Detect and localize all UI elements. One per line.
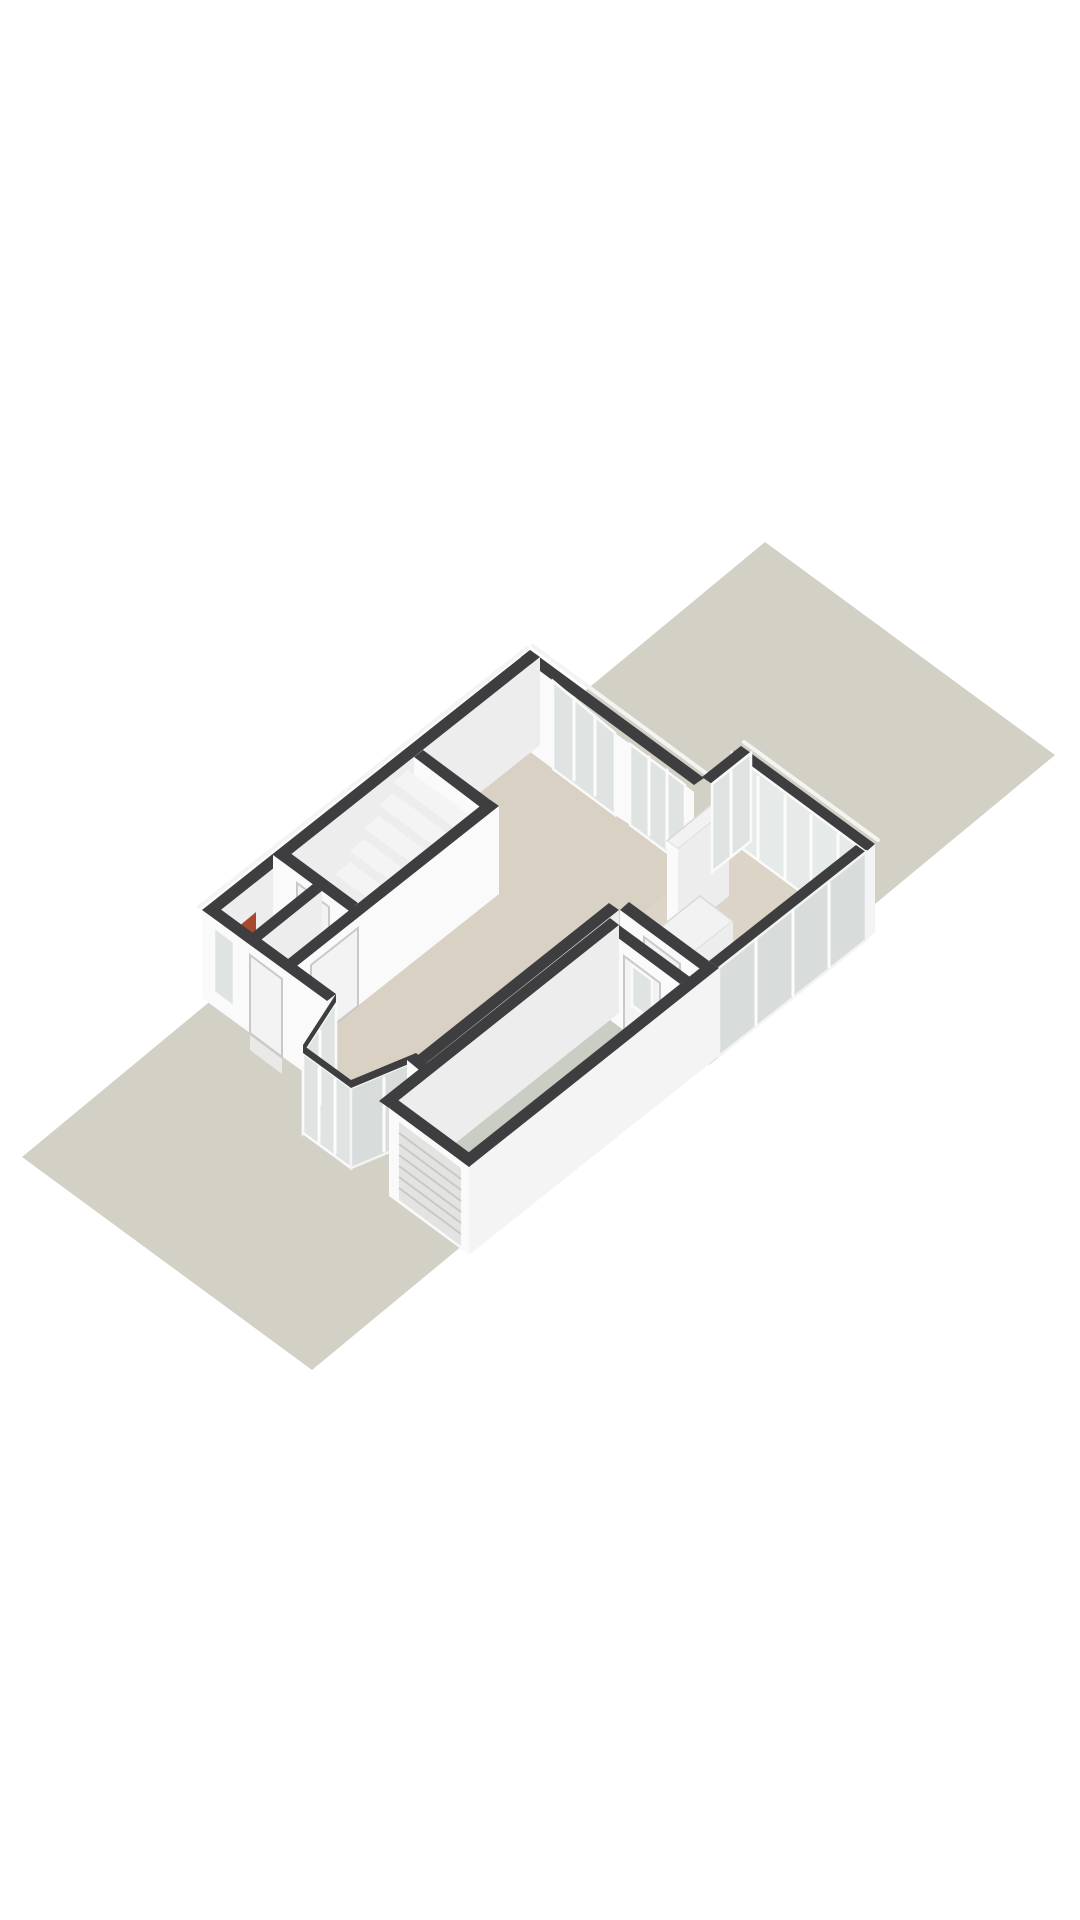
floorplan-3d-render: Isometric 3D render of a ground floor pl… xyxy=(0,0,1080,1920)
floorplan-canvas xyxy=(0,0,1080,1920)
window-pier xyxy=(615,733,630,825)
annex-corner-post xyxy=(866,844,875,940)
front-window-glass xyxy=(214,927,234,1007)
